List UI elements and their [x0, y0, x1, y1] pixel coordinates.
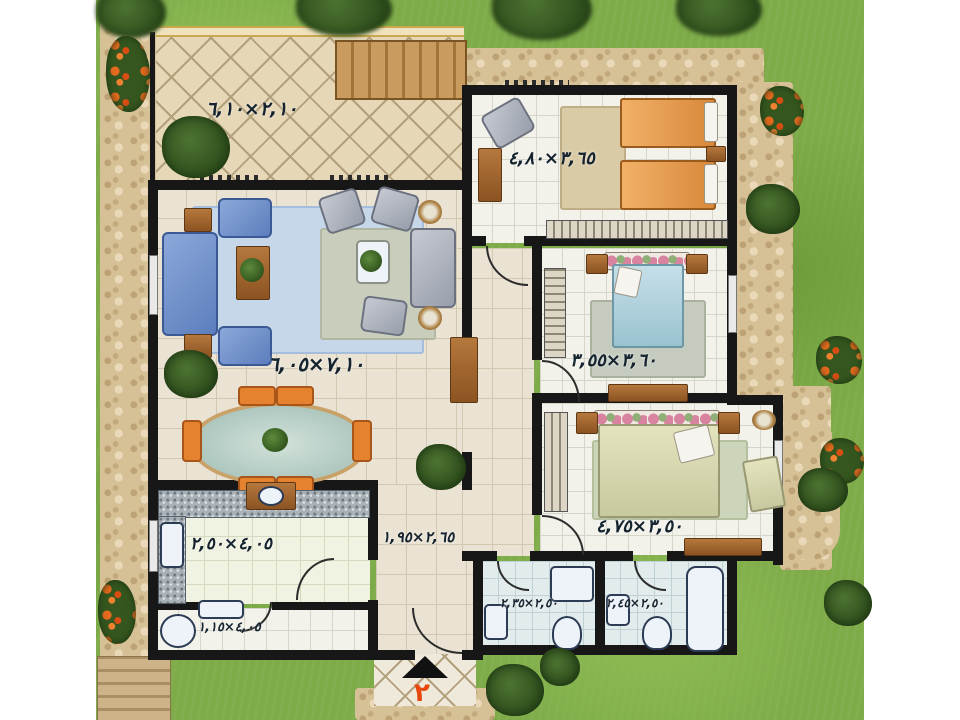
grey-loveseat [410, 228, 456, 308]
bedroom1-dimension-label: ٣,٦٥×٤,٨٠ [508, 148, 595, 169]
bedroom3-wardrobe [544, 412, 568, 512]
flower-bush-right-mid [816, 336, 862, 384]
flower-bush-top-left [106, 36, 150, 112]
tv-console [450, 337, 478, 403]
bedroom1-dresser [478, 148, 502, 202]
shrub-bottom-center-1 [486, 664, 544, 716]
palm-top-left [162, 116, 230, 178]
kitchen-dimension-label: ٤,٠٥×٢,٥٠ [190, 534, 272, 554]
flower-bush-right-top [760, 86, 804, 136]
palm-living [164, 350, 218, 398]
bedroom3-nightstand-r [718, 412, 740, 434]
dining-centerpiece [262, 428, 288, 452]
bath2-dimension-label: ٢,٥٠×٢,٤٥ [606, 596, 664, 610]
dining-chair-2 [276, 386, 314, 406]
bedroom3-dimension-label: ٣,٥٠×٤,٧٥ [596, 516, 683, 537]
bedroom1-bed-a [620, 98, 716, 148]
bath1-dimension-label: ٢,٥٠×٢,٣٥ [500, 596, 558, 610]
wall-corridor-b [532, 400, 542, 515]
floor-plan-image: ٢,١٠×٦,١٠ [0, 0, 960, 720]
kitchen-sink [160, 522, 184, 568]
bath2-bathtub [686, 566, 724, 652]
round-table-2 [418, 306, 442, 330]
flower-bush-bottom-left [98, 580, 136, 644]
bedroom3-dresser [684, 538, 762, 556]
hall-palm-plant [416, 444, 466, 490]
bedroom1-pillow-a [704, 102, 718, 142]
bath1-toilet [552, 616, 582, 650]
living-armchair-top [218, 198, 272, 238]
grey-chair-bottom [360, 295, 409, 337]
entrance-arrow-icon [402, 656, 448, 678]
window-right-bed2 [728, 275, 737, 333]
living-dimension-label: ٧,١٠×٦,٠٥ [268, 352, 364, 376]
hall-dimension-label: ٢,٦٥×١,٩٥ [382, 528, 454, 546]
shrub-bottom-right-1 [798, 468, 848, 512]
shrub-right-1 [746, 184, 800, 234]
service-counter [198, 600, 244, 619]
wall-bath-right [727, 551, 737, 655]
wall-corridor-a [532, 246, 542, 360]
bath2-toilet [642, 616, 672, 650]
bedroom2-wardrobe [544, 268, 566, 358]
bedroom1-nightstand [706, 146, 726, 162]
living-sofa-blue [162, 232, 218, 336]
shrub-bottom-center-2 [540, 648, 580, 686]
hall-floor-2 [462, 484, 534, 556]
bedroom1-pillow-b [704, 164, 718, 204]
bedroom2-dimension-label: ٣,٦٠×٣,٥٥ [570, 350, 657, 371]
bedroom1-bed-b [620, 160, 716, 210]
wall-bath1-left [473, 561, 483, 653]
living-side-table-1 [184, 208, 212, 232]
bedroom1-wardrobe [546, 220, 728, 239]
service-dimension-label: ٤,٠٥×١,١٥ [198, 620, 261, 635]
round-table-1 [418, 200, 442, 224]
bedroom3-nightstand-l [576, 412, 598, 434]
dining-chair-5 [182, 420, 202, 462]
terrace-dimension-label: ٢,١٠×٦,١٠ [206, 98, 298, 120]
wall-bed3-bottom-a [462, 551, 497, 561]
living-table-plant [240, 258, 264, 282]
kitchen-stove-oval [258, 486, 284, 506]
bedroom2-nightstand-l [586, 254, 608, 274]
garden-steps [97, 656, 171, 720]
wall-bath-divider [595, 561, 605, 653]
bedroom3-side-table [752, 410, 776, 430]
wall-bed1-bottom-a [472, 236, 486, 246]
living-armchair-bottom [218, 326, 272, 366]
dining-chair-1 [238, 386, 276, 406]
wall-left [148, 180, 158, 660]
window-living-2-icon [330, 175, 388, 180]
window-bedroom1-icon [505, 80, 569, 85]
grey-table-plant [360, 250, 382, 272]
terrace-wood-deck [335, 40, 467, 100]
wall-bedroom1-top [462, 85, 737, 95]
window-left-kitchen [149, 520, 158, 572]
wall-kitchen-service-b [272, 602, 372, 610]
washer [160, 614, 196, 648]
bedroom2-nightstand-r [686, 254, 708, 274]
shrub-bottom-right-2 [824, 580, 872, 626]
wall-service-bottom [148, 650, 378, 660]
bedroom2-dresser [608, 384, 688, 402]
entrance-unit-number: ٢ [414, 678, 430, 708]
wall-living-top [148, 180, 472, 190]
window-left-living [149, 255, 158, 315]
dining-chair-6 [352, 420, 372, 462]
wall-hall-bottom-b [462, 650, 483, 660]
wall-terrace-left [150, 32, 155, 182]
